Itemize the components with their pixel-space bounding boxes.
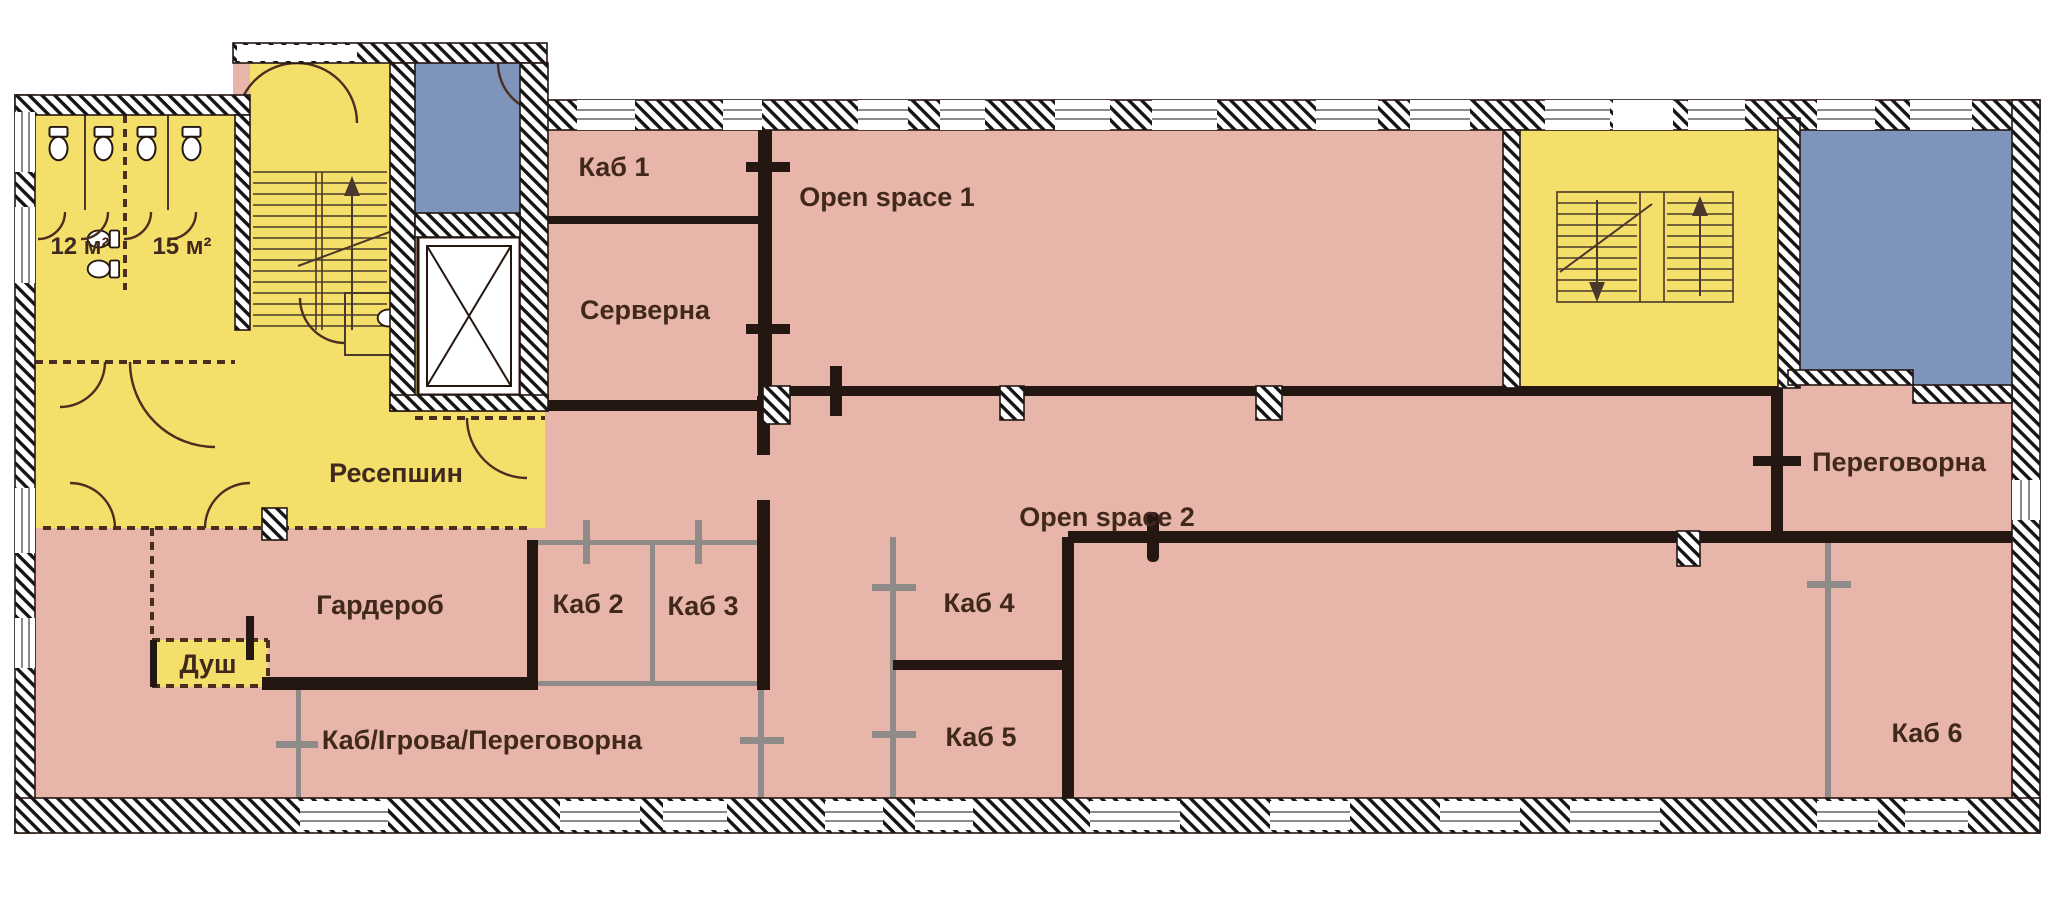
room-label-kab-4: Каб 4 (943, 588, 1014, 618)
room-label-kab-3: Каб 3 (667, 591, 738, 621)
column (1256, 386, 1282, 420)
room-label-serverna: Серверна (580, 295, 711, 325)
room-label-wc-12: 12 м² (50, 233, 109, 260)
stairwell-left-floor (250, 63, 390, 330)
elevator (418, 237, 520, 395)
room-label-resepshyn: Ресепшин (329, 458, 463, 488)
room-label-dush: Душ (179, 649, 236, 679)
column (1677, 531, 1700, 566)
shaft-right (1800, 130, 2012, 385)
room-label-open-space-1: Open space 1 (799, 182, 975, 212)
room-label-open-space-2: Open space 2 (1019, 502, 1195, 532)
room-label-perehovorna: Переговорна (1812, 447, 1987, 477)
room-label-kab-6: Каб 6 (1891, 718, 1962, 748)
toilet-icon (88, 261, 119, 278)
room-label-kab-5: Каб 5 (945, 722, 1016, 752)
floor-plan-canvas: 12 м² 15 м² Каб 1 Серверна Open space 1 … (0, 0, 2048, 914)
column (763, 386, 790, 424)
toilet-icon (138, 127, 156, 160)
toilet-icon (183, 127, 201, 160)
toilet-icon (95, 127, 113, 160)
column (1000, 386, 1024, 420)
column (262, 508, 287, 540)
toilet-icon (50, 127, 68, 160)
room-label-wc-15: 15 м² (152, 233, 211, 260)
room-label-kab-2: Каб 2 (552, 589, 623, 619)
room-label-kab-1: Каб 1 (578, 152, 649, 182)
stairwell-right-floor (1520, 118, 1778, 388)
window-right (2012, 480, 2040, 520)
floor-plan: 12 м² 15 м² Каб 1 Серверна Open space 1 … (0, 0, 2048, 914)
room-label-harderob: Гардероб (316, 590, 444, 620)
room-label-kab-ihrova-perehovorna: Каб/Ігрова/Переговорна (322, 725, 643, 755)
room-wc-block (35, 115, 235, 528)
